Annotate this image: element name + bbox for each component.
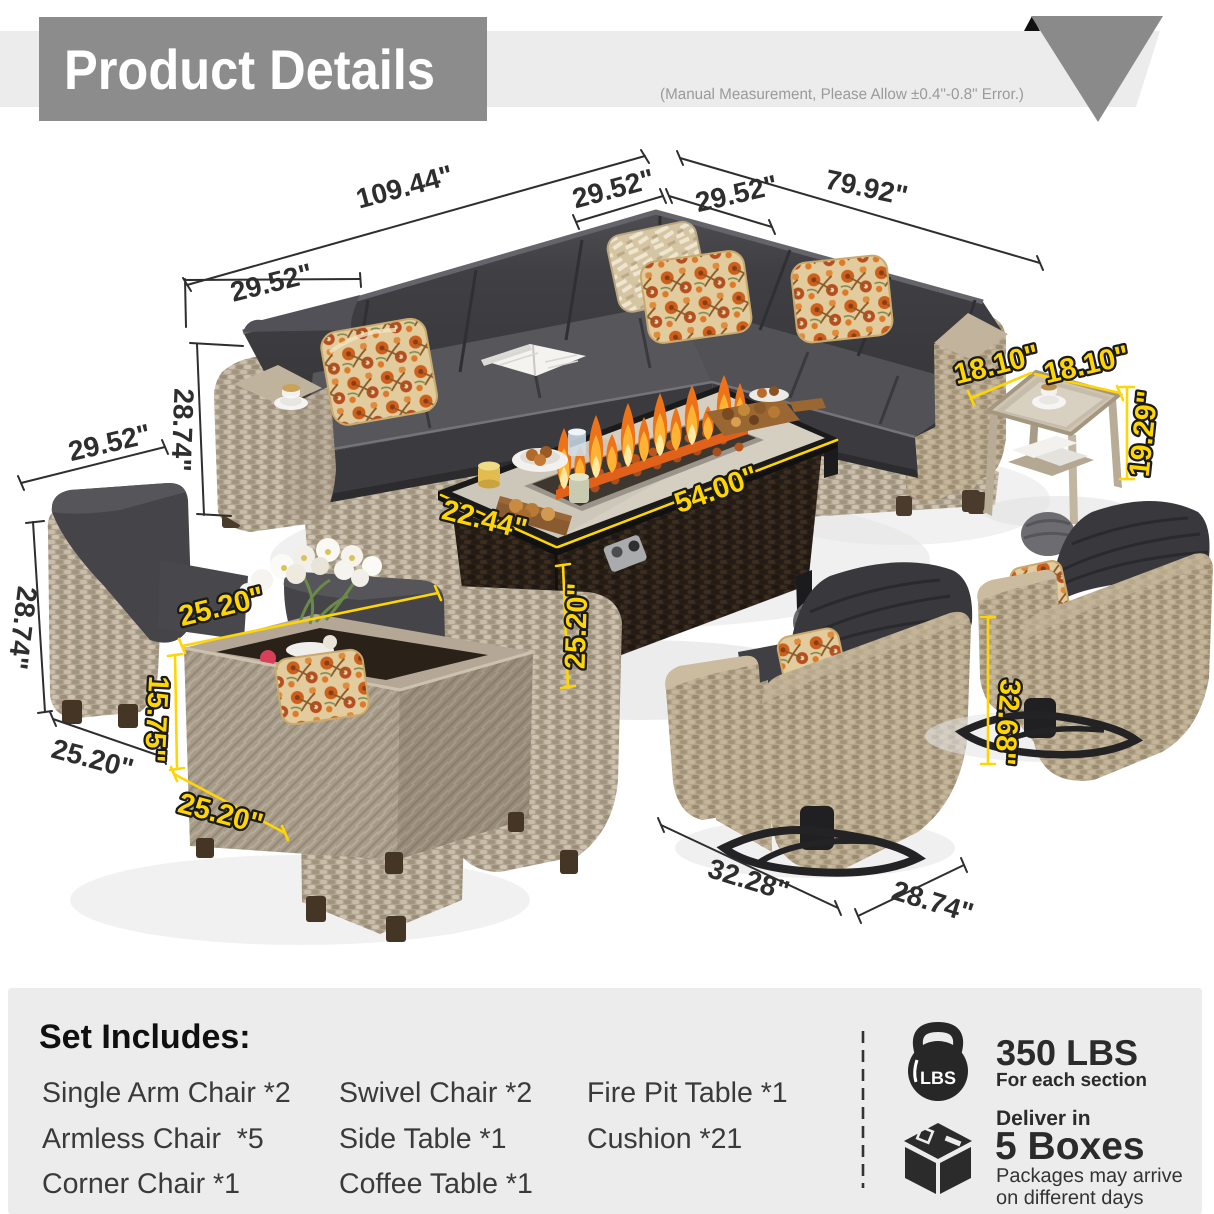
svg-text:Swivel Chair *2: Swivel Chair *2: [339, 1077, 532, 1109]
svg-text:(Manual Measurement, Please Al: (Manual Measurement, Please Allow ±0.4"-…: [660, 86, 1024, 103]
svg-text:25.20": 25.20": [560, 582, 595, 669]
svg-text:Coffee Table *1: Coffee Table *1: [339, 1168, 533, 1200]
svg-text:Cushion *21: Cushion *21: [587, 1123, 742, 1155]
svg-text:LBS: LBS: [920, 1068, 956, 1088]
svg-text:Packages may arrive: Packages may arrive: [996, 1165, 1183, 1187]
svg-text:For each section: For each section: [996, 1070, 1147, 1091]
svg-text:32.68": 32.68": [988, 678, 1026, 766]
svg-text:15.75": 15.75": [138, 675, 174, 763]
svg-text:350 LBS: 350 LBS: [996, 1032, 1138, 1073]
svg-text:28.74": 28.74": [166, 388, 200, 472]
svg-text:Corner Chair *1: Corner Chair *1: [42, 1168, 240, 1200]
svg-text:5 Boxes: 5 Boxes: [995, 1125, 1145, 1168]
svg-text:Product Details: Product Details: [64, 38, 435, 101]
svg-text:on different days: on different days: [996, 1187, 1144, 1209]
svg-text:Single Arm Chair *2: Single Arm Chair *2: [42, 1077, 291, 1109]
svg-text:Armless Chair *5: Armless Chair *5: [42, 1123, 264, 1155]
svg-text:Set Includes:: Set Includes:: [39, 1018, 251, 1056]
svg-text:Side Table *1: Side Table *1: [339, 1123, 506, 1155]
svg-text:Fire Pit Table *1: Fire Pit Table *1: [587, 1077, 788, 1109]
